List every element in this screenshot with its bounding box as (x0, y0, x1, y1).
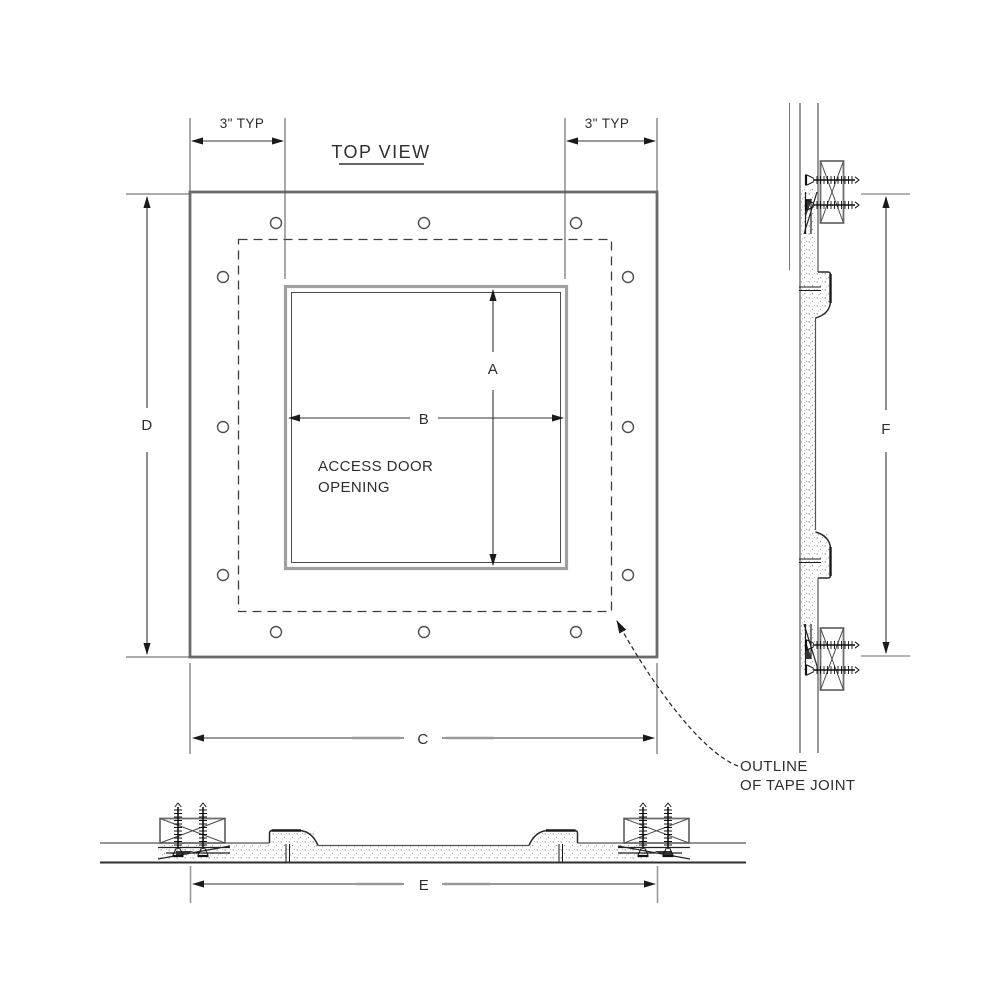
dim-label-d: D (141, 417, 152, 434)
screw-hole (218, 570, 229, 581)
framing-member-left (160, 819, 225, 844)
screw-hole (419, 218, 430, 229)
dimension-3typ-left: 3" TYP (190, 116, 285, 279)
access-door-drawing: TOP VIEW 3" TYP (0, 0, 1000, 1000)
dim-label-f: F (881, 421, 891, 438)
tape-joint-note-line1: OUTLINE (740, 758, 808, 775)
top-view: TOP VIEW 3" TYP (126, 116, 856, 794)
dimension-d: D (126, 194, 190, 657)
dimension-c: C (190, 663, 657, 754)
screw-hole (571, 627, 582, 638)
screw (806, 175, 859, 186)
gypsum-core (158, 845, 648, 862)
dimension-f: F (861, 194, 910, 656)
dimension-3typ-right: 3" TYP (565, 116, 657, 279)
dim-label-b: B (419, 411, 429, 428)
dim-label-3typ-left: 3" TYP (220, 116, 264, 131)
gypsum-core (801, 188, 816, 670)
side-section-view: F (790, 103, 911, 753)
access-door-opening-label-line2: OPENING (318, 479, 390, 496)
screw-hole (218, 422, 229, 433)
screw-hole (623, 422, 634, 433)
dimension-e: E (191, 866, 658, 903)
framing-member-right (624, 819, 689, 844)
framing-member-top (821, 161, 844, 223)
dim-label-e: E (419, 877, 429, 894)
dimension-a: A (488, 290, 498, 565)
screw-hole (571, 218, 582, 229)
screw-hole (271, 218, 282, 229)
dim-label-c: C (417, 731, 428, 748)
gypsum-core-bump-bottom (816, 534, 829, 576)
dim-label-a: A (488, 361, 498, 378)
tape-joint-note-line2: OF TAPE JOINT (740, 777, 856, 794)
dimension-b: B (289, 411, 563, 428)
screw-hole (271, 627, 282, 638)
screw-hole (623, 570, 634, 581)
screw-hole (218, 272, 229, 283)
gypsum-core-bump-top (816, 273, 829, 315)
screw-hole (623, 272, 634, 283)
page-title: TOP VIEW (331, 142, 430, 162)
dim-label-3typ-right: 3" TYP (585, 116, 629, 131)
access-door-opening-label-line1: ACCESS DOOR (318, 458, 433, 475)
bottom-section-view: E (100, 803, 746, 903)
framing-member-bottom (821, 628, 844, 690)
screw-hole (419, 627, 430, 638)
